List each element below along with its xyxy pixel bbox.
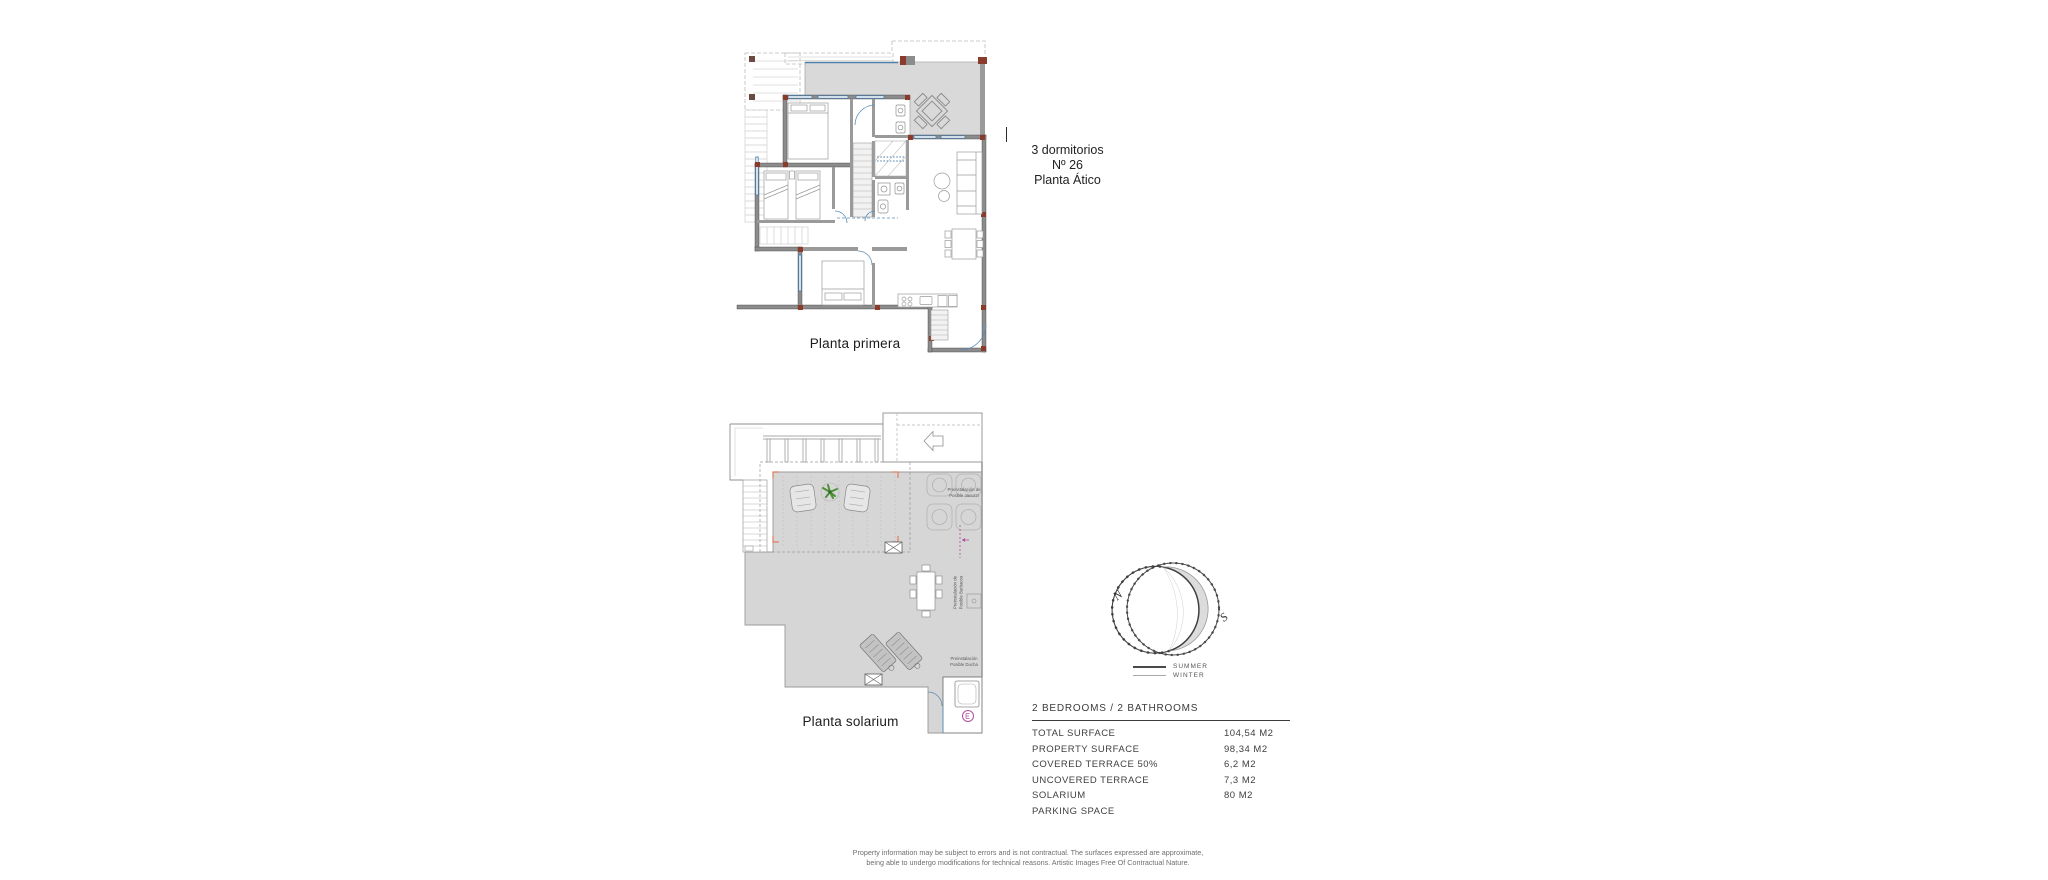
row-value: 104,54 M2 xyxy=(1224,728,1273,739)
row-value: 6,2 M2 xyxy=(1224,759,1256,770)
surface-table-rows: TOTAL SURFACE 104,54 M2 PROPERTY SURFACE… xyxy=(1032,728,1290,821)
table-row: PARKING SPACE xyxy=(1032,806,1290,822)
unit-floor: Planta Ático xyxy=(990,173,1145,188)
winter-line xyxy=(1133,675,1166,676)
barbecue-fixture xyxy=(967,594,981,608)
unit-bedrooms: 3 dormitorios xyxy=(990,143,1145,158)
row-label: UNCOVERED TERRACE xyxy=(1032,775,1149,786)
beds xyxy=(764,103,864,305)
unit-header: 3 dormitorios Nº 26 Planta Ático xyxy=(990,143,1145,188)
sun-legend: SUMMER WINTER xyxy=(1133,662,1243,680)
row-label: PARKING SPACE xyxy=(1032,806,1115,817)
table-row: PROPERTY SURFACE 98,34 M2 xyxy=(1032,744,1290,760)
disclaimer: Property information may be subject to e… xyxy=(813,848,1243,868)
disclaimer-line1: Property information may be subject to e… xyxy=(813,848,1243,858)
disclaimer-line2: being able to undergo modifications for … xyxy=(813,858,1243,868)
table-row: TOTAL SURFACE 104,54 M2 xyxy=(1032,728,1290,744)
legend-winter-row: WINTER xyxy=(1133,671,1243,680)
row-value: 98,34 M2 xyxy=(1224,744,1268,755)
barbecue-note: Preinstalación de Posible Barbacoa xyxy=(953,567,964,619)
sun-path-diagram xyxy=(1103,548,1248,678)
row-value: 7,3 M2 xyxy=(1224,775,1256,786)
summer-label: SUMMER xyxy=(1173,663,1208,670)
wardrobe xyxy=(875,141,906,176)
row-label: COVERED TERRACE 50% xyxy=(1032,759,1158,770)
row-label: TOTAL SURFACE xyxy=(1032,728,1115,739)
table-row: SOLARIUM 80 M2 xyxy=(1032,790,1290,806)
legend-summer-row: SUMMER xyxy=(1133,662,1243,671)
table-row: UNCOVERED TERRACE 7,3 M2 xyxy=(1032,775,1290,791)
row-label: SOLARIUM xyxy=(1032,790,1086,801)
solarium-stairs xyxy=(743,480,767,552)
jacuzzi-note: Preinstalación de Posible Jacuzzi xyxy=(935,487,993,498)
section-mark xyxy=(1006,127,1007,142)
upper-floor-plan xyxy=(720,33,1020,363)
lower-plan-label: Planta solarium xyxy=(758,714,943,729)
plan-sheet: { "colors": { "terrace_gray": "#d9d9d9",… xyxy=(0,0,2048,880)
table-row: COVERED TERRACE 50% 6,2 M2 xyxy=(1032,759,1290,775)
shower-note: Preinstalación Posible Ducha xyxy=(936,656,992,667)
living-furniture xyxy=(934,152,983,259)
surface-table: 2 BEDROOMS / 2 BATHROOMS TOTAL SURFACE 1… xyxy=(1032,703,1290,821)
winter-label: WINTER xyxy=(1173,672,1205,679)
row-value: 80 M2 xyxy=(1224,790,1253,801)
surface-table-title: 2 BEDROOMS / 2 BATHROOMS xyxy=(1032,703,1290,721)
unit-number: Nº 26 xyxy=(990,158,1145,173)
row-label: PROPERTY SURFACE xyxy=(1032,744,1139,755)
upper-plan-label: Planta primera xyxy=(760,336,950,351)
door-swings xyxy=(835,105,986,350)
stairs xyxy=(853,143,872,217)
summer-line xyxy=(1133,666,1166,668)
pergola-slats xyxy=(763,436,881,462)
kitchen xyxy=(898,294,957,307)
